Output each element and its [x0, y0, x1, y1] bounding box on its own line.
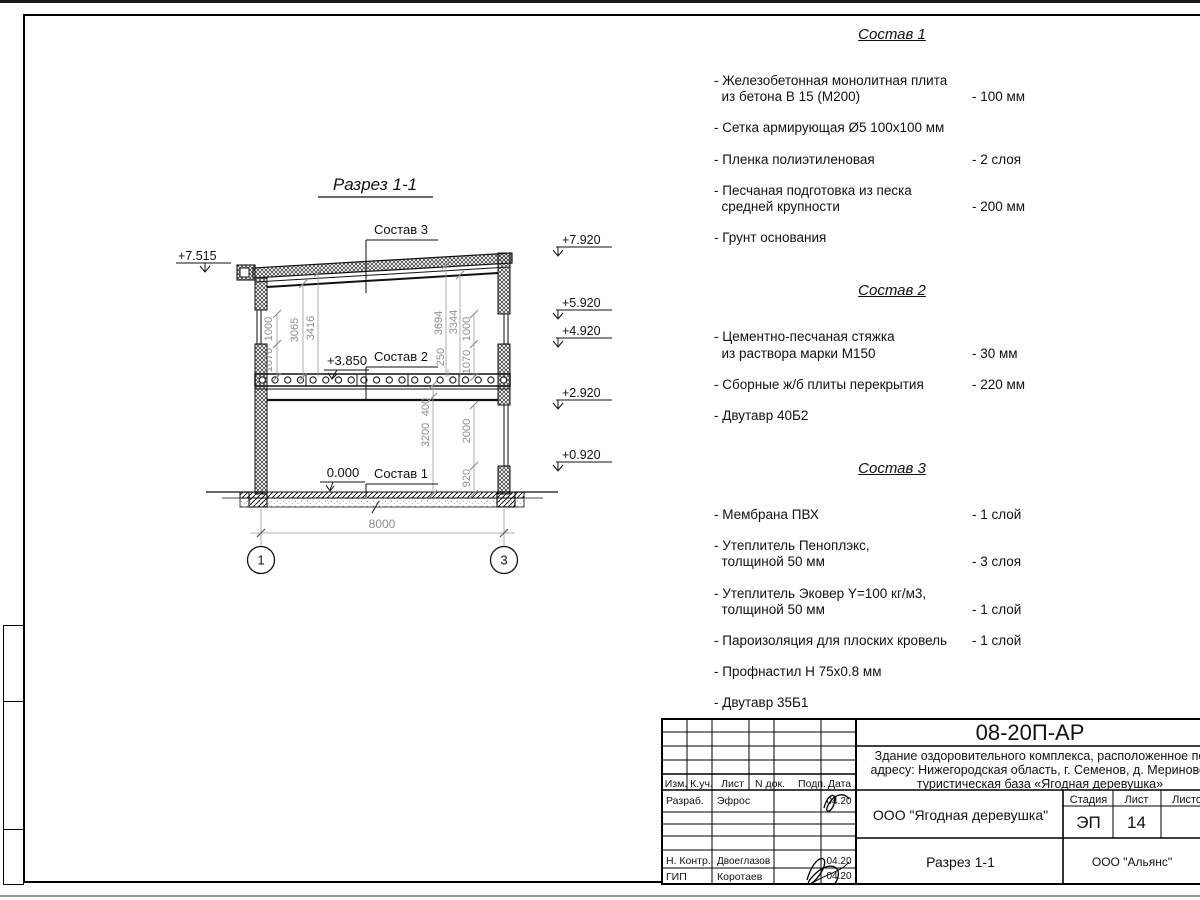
left-window — [257, 310, 261, 344]
dim-3416: 3416 — [305, 316, 317, 340]
stage-value: ЭП — [1064, 808, 1113, 838]
composition-3-title: Состав 3 — [714, 460, 1070, 477]
material-value: - 1 слой — [972, 602, 1067, 618]
axis-3-text: 3 — [500, 553, 507, 568]
frame-margin-cell — [3, 701, 24, 831]
sheet-label: Лист — [1113, 792, 1160, 807]
dim-3344: 3344 — [448, 310, 460, 334]
composition-2: Состав 2 - Цементно-песчаная стяжка из р… — [714, 282, 1070, 424]
dim-1070-left: 1070 — [263, 348, 275, 372]
list-item: - Мембрана ПВХ- 1 слой — [714, 507, 1070, 523]
stamp-name-razrab: Эфрос — [717, 793, 775, 809]
material-name: - Железобетонная монолитная плита из бет… — [714, 73, 972, 105]
dim-1000-right: 1000 — [461, 317, 473, 341]
document-code: 08-20П-АР — [858, 719, 1200, 747]
stamp-name-gip: Коротаев — [717, 869, 777, 884]
dim-920: 920 — [461, 469, 473, 487]
sheet-title: Разрез 1-1 — [858, 840, 1063, 884]
right-wall — [498, 253, 510, 314]
callout-sostav3-text: Состав 3 — [374, 222, 428, 237]
material-value: - 3 слоя — [972, 554, 1067, 570]
material-name: - Пароизоляция для плоских кровель — [714, 633, 972, 649]
dim-400: 400 — [420, 398, 432, 416]
dim-1000-left: 1000 — [263, 317, 275, 341]
material-name: - Мембрана ПВХ — [714, 507, 972, 523]
level-0000-text: 0.000 — [327, 465, 360, 480]
dim-1070-right: 1070 — [461, 350, 473, 374]
list-item: - Двутавр 35Б1 — [714, 695, 1070, 711]
dimension-texts: 1070 1000 3065 3416 3694 3344 250 1070 1… — [263, 310, 473, 487]
elevation-4920-text: +4.920 — [562, 324, 601, 338]
elevation-7920: +7.920 — [553, 233, 612, 256]
project-description: Здание оздоровительного комплекса, распо… — [858, 749, 1200, 791]
stamp-col-kuch: К.уч. — [689, 777, 714, 791]
project-description-line3: туристическая база «Ягодная деревушка» — [858, 777, 1200, 791]
frame-margin-cell — [3, 829, 24, 885]
drawing-sheet: { "drawing": { "title": "Разрез 1-1", "c… — [0, 0, 1200, 900]
project-description-line1: Здание оздоровительного комплекса, распо… — [858, 749, 1200, 763]
stamp-col-list: Лист — [714, 777, 751, 791]
material-value: - 100 мм — [972, 89, 1067, 105]
section-drawing: Разрез 1-1 — [140, 160, 650, 605]
material-value: - 2 слоя — [972, 152, 1067, 168]
level-0000: 0.000 — [320, 465, 365, 491]
section-title: Разрез 1-1 — [318, 175, 433, 197]
sheet-top-edge — [0, 0, 1200, 3]
callout-sostav1-text: Состав 1 — [374, 466, 428, 481]
sheet-bottom-edge — [0, 895, 1200, 897]
elevation-4920: +4.920 — [553, 324, 612, 347]
sheet-number: 14 — [1113, 808, 1160, 838]
foundation-pad-left — [249, 492, 267, 507]
material-name: - Сетка армирующая Ø5 100х100 мм — [714, 120, 972, 136]
elevation-2920-text: +2.920 — [562, 386, 601, 400]
right-window-upper — [504, 314, 508, 344]
material-name: - Песчаная подготовка из песка средней к… — [714, 183, 972, 215]
elevation-7515: +7.515 — [176, 249, 231, 272]
elevation-5920: +5.920 — [553, 296, 612, 319]
material-name: - Двутавр 35Б1 — [714, 695, 972, 711]
list-item: - Двутавр 40Б2 — [714, 408, 1070, 424]
intermediate-floor — [255, 374, 510, 400]
elevation-0920: +0.920 — [553, 448, 612, 471]
composition-3: Состав 3 - Мембрана ПВХ- 1 слой - Утепли… — [714, 460, 1070, 712]
list-item: - Грунт основания — [714, 230, 1070, 246]
material-name: - Пленка полиэтиленовая — [714, 152, 972, 168]
right-window-lower — [504, 405, 508, 466]
material-value: - 1 слой — [972, 507, 1067, 523]
frame-margin-cell — [3, 625, 24, 703]
material-value: - 1 слой — [972, 633, 1067, 649]
dim-2000: 2000 — [461, 419, 473, 443]
list-item: - Пароизоляция для плоских кровель- 1 сл… — [714, 633, 1070, 649]
elevation-5920-text: +5.920 — [562, 296, 601, 310]
dim-3200: 3200 — [420, 423, 432, 447]
stamp-col-ndoc: N док. — [751, 777, 789, 791]
material-name: - Цементно-песчаная стяжка из раствора м… — [714, 329, 972, 361]
elevation-7920-text: +7.920 — [562, 233, 601, 247]
composition-1-title: Состав 1 — [714, 26, 1070, 43]
dim-250: 250 — [435, 348, 447, 366]
left-wall — [255, 278, 267, 310]
stamp-col-izm: Изм. — [663, 777, 689, 791]
elevation-0920-text: +0.920 — [562, 448, 601, 462]
list-item: - Пленка полиэтиленовая- 2 слоя — [714, 152, 1070, 168]
material-name: - Грунт основания — [714, 230, 972, 246]
foundation-pad-right — [497, 492, 515, 507]
project-description-line2: адресу: Нижегородская область, г. Семено… — [858, 763, 1200, 777]
composition-1: Состав 1 - Железобетонная монолитная пли… — [714, 26, 1070, 246]
composition-2-title: Состав 2 — [714, 282, 1070, 299]
stamp-date-nkontr: 04.20 — [822, 853, 856, 869]
material-name: - Двутавр 40Б2 — [714, 408, 972, 424]
list-item: - Профнастил Н 75х0.8 мм — [714, 664, 1070, 680]
list-item: - Утеплитель Эковер Y=100 кг/м3, толщино… — [714, 586, 1070, 618]
elevation-2920: +2.920 — [553, 386, 612, 409]
roof — [237, 253, 512, 287]
stage-label: Стадия — [1064, 792, 1113, 807]
material-value: - 220 мм — [972, 377, 1067, 393]
material-name: - Сборные ж/б плиты перекрытия — [714, 377, 972, 393]
dim-3694: 3694 — [433, 311, 445, 335]
list-item: - Сборные ж/б плиты перекрытия- 220 мм — [714, 377, 1070, 393]
list-item: - Цементно-песчаная стяжка из раствора м… — [714, 329, 1070, 361]
material-name: - Утеплитель Эковер Y=100 кг/м3, толщино… — [714, 586, 972, 618]
contractor-org: ООО "Альянс" — [1064, 840, 1200, 884]
material-value: - 200 мм — [972, 199, 1067, 215]
customer-org: ООО "Ягодная деревушка" — [858, 792, 1063, 838]
material-name: - Утеплитель Пеноплэкс, толщиной 50 мм — [714, 538, 972, 570]
composition-lists: Состав 1 - Железобетонная монолитная пли… — [714, 26, 1070, 727]
ground-slab — [206, 492, 558, 513]
axis-1-text: 1 — [257, 553, 264, 568]
material-value: - 30 мм — [972, 346, 1067, 362]
list-item: - Железобетонная монолитная плита из бет… — [714, 73, 1070, 105]
stamp-role-gip: ГИП — [666, 869, 714, 884]
stamp-col-data: Дата — [823, 777, 856, 791]
list-item: - Сетка армирующая Ø5 100х100 мм — [714, 120, 1070, 136]
span-dimension: 8000 1 3 — [248, 509, 518, 574]
dim-3065: 3065 — [289, 318, 301, 342]
elevation-7515-text: +7.515 — [178, 249, 217, 263]
stamp-role-nkontr: Н. Контр. — [666, 853, 714, 869]
level-3850-text: +3.850 — [327, 353, 367, 368]
stamp-date-razrab: 04.20 — [822, 793, 856, 809]
sheets-label: Листов — [1161, 792, 1200, 807]
callout-sostav2-text: Состав 2 — [374, 349, 428, 364]
stamp-name-nkontr: Двоеглазов — [717, 853, 777, 869]
section-title-text: Разрез 1-1 — [333, 175, 417, 194]
list-item: - Песчаная подготовка из песка средней к… — [714, 183, 1070, 215]
list-item: - Утеплитель Пеноплэкс, толщиной 50 мм- … — [714, 538, 1070, 570]
material-name: - Профнастил Н 75х0.8 мм — [714, 664, 972, 680]
stamp-role-razrab: Разраб. — [666, 793, 712, 809]
span-8000-text: 8000 — [369, 517, 396, 531]
stamp-date-gip: 04.20 — [822, 869, 856, 884]
